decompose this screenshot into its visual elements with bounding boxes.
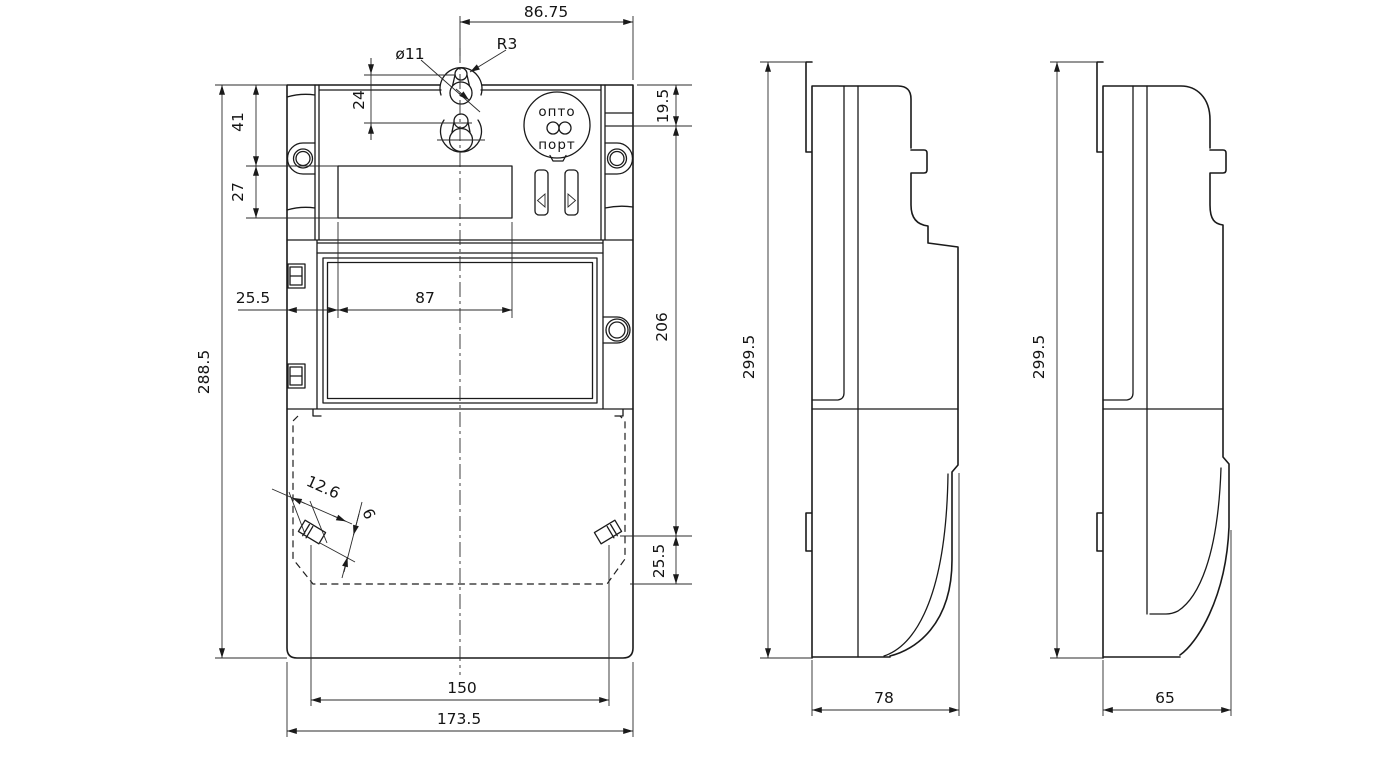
ear-left-outline <box>287 143 315 174</box>
dim-lcd-inset: 25.5 <box>236 289 271 307</box>
terminal-cover-hidden <box>293 416 625 584</box>
dim-lcd-width: 87 <box>415 289 435 307</box>
side-view-left <box>806 62 958 658</box>
side-left-dimensions: 299.5 78 <box>740 62 959 716</box>
dim-lcd-height: 27 <box>229 182 247 202</box>
seal-ear-outline <box>603 317 630 343</box>
lcd-display <box>338 166 512 218</box>
seal-ear-hole-inner <box>609 322 625 338</box>
side-right-details <box>1103 86 1223 614</box>
button-right <box>565 170 578 215</box>
screw-dia-arrow-1 <box>354 514 360 535</box>
side-clips <box>288 264 305 388</box>
hanger-boss <box>440 68 482 95</box>
side-left-details <box>812 86 958 657</box>
meter-outline-drawing: опто порт <box>0 0 1382 777</box>
dim-screw-length: 12.6 <box>304 472 343 502</box>
dim-side-depth: 78 <box>874 689 894 707</box>
side-left-extensions <box>760 62 959 716</box>
screw-len-arrow-1 <box>292 498 305 504</box>
ear-right-hole-inner <box>610 152 624 166</box>
side-right-dimensions: 299.5 65 <box>1030 62 1231 716</box>
side-right-outline <box>1097 62 1229 658</box>
ear-right-outline <box>605 143 633 174</box>
dim-top-width: 86.75 <box>524 3 568 21</box>
screw-dia-arrow-2 <box>342 557 348 578</box>
dim-top-inset: 19.5 <box>654 89 672 124</box>
screw-left <box>298 520 325 544</box>
dim-hang-pitch: 24 <box>350 90 368 110</box>
keyhole-slot-circle <box>455 68 467 80</box>
dim-ear-offset: 41 <box>229 112 247 132</box>
side-view-right <box>1097 62 1229 658</box>
dim-body-height: 288.5 <box>195 350 213 394</box>
screw-len-arrow-2 <box>333 516 346 522</box>
drawing-sheet: опто порт <box>0 0 1382 777</box>
dim-overall-width: 173.5 <box>437 710 481 728</box>
leader-hole-dia <box>421 60 480 112</box>
dim-screw-pitch: 150 <box>447 679 477 697</box>
opto-label-bottom: порт <box>538 137 576 153</box>
button-left-arrow-icon <box>538 194 546 207</box>
side-left-outline <box>806 62 958 658</box>
keyhole-alt-slot-circle <box>454 114 468 128</box>
dim-screw-dia: 6 <box>358 506 378 522</box>
screw-dim-lines <box>272 489 362 572</box>
dim-side-height: 299.5 <box>740 335 758 379</box>
dim-screw-to-cover: 25.5 <box>650 544 668 579</box>
front-view: опто порт <box>287 48 633 675</box>
opto-led-right <box>559 122 571 134</box>
dim-hole-dia: ø11 <box>395 45 424 63</box>
dim-side2-height: 299.5 <box>1030 335 1048 379</box>
scroll-buttons <box>535 170 578 215</box>
ear-left-hole-inner <box>296 152 310 166</box>
leader-hole-dia-arrow <box>456 89 469 100</box>
opto-port: опто порт <box>524 92 590 161</box>
screw-right <box>594 520 621 544</box>
leader-hole-radius <box>470 50 506 72</box>
button-right-arrow-icon <box>568 194 576 207</box>
dim-side2-depth: 65 <box>1155 689 1175 707</box>
side-right-extensions <box>1050 62 1231 716</box>
hanger-boss-alt <box>441 120 482 152</box>
dim-hole-radius: R3 <box>497 35 518 53</box>
opto-led-left <box>547 122 559 134</box>
dim-face-height: 206 <box>653 312 671 342</box>
screw-dim-cluster <box>272 489 362 578</box>
opto-label-top: опто <box>538 104 575 120</box>
button-left <box>535 170 548 215</box>
